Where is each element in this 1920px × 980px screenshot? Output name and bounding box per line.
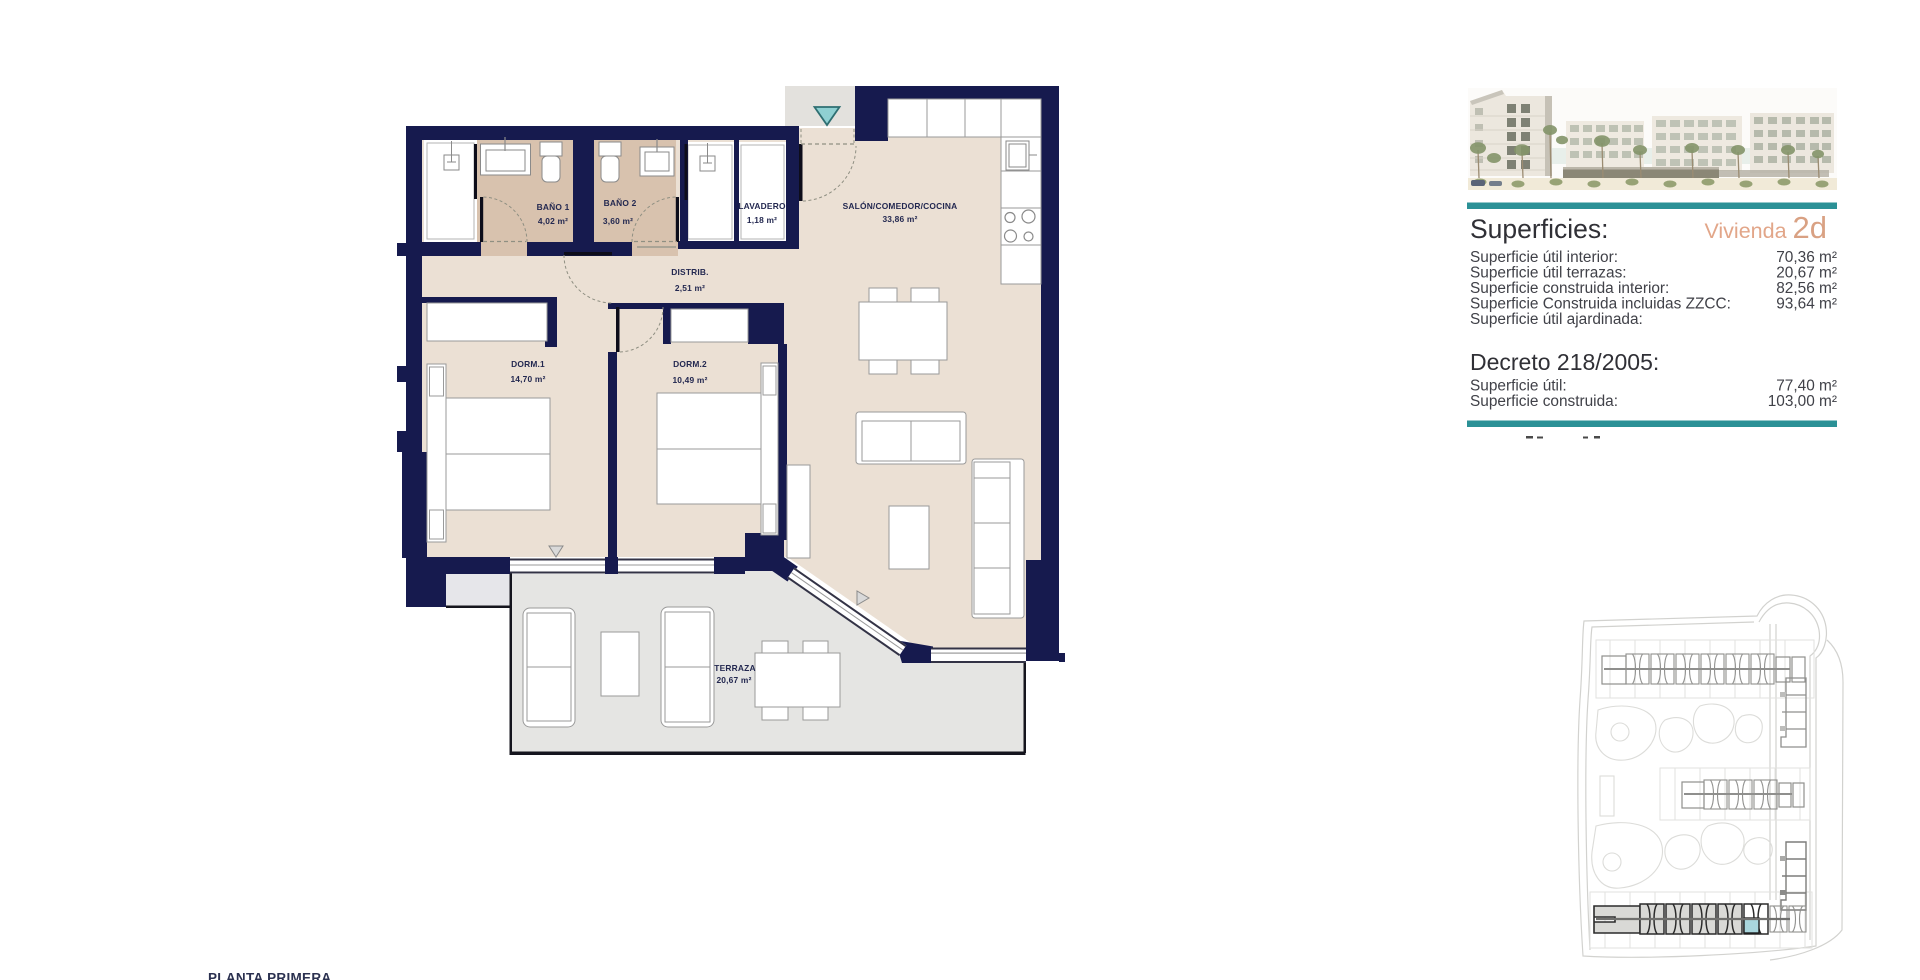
svg-text:DORM.1: DORM.1 [511, 359, 545, 369]
svg-text:Superficie construida interior: Superficie construida interior: [1470, 280, 1669, 297]
svg-text:Superficie construida:: Superficie construida: [1470, 393, 1618, 410]
svg-text:LAVADERO: LAVADERO [738, 201, 786, 211]
svg-text:20,67 m²: 20,67 m² [1776, 265, 1837, 282]
svg-text:20,67 m²: 20,67 m² [716, 675, 751, 685]
svg-text:Decreto 218/2005:: Decreto 218/2005: [1470, 349, 1659, 375]
svg-text:3,60 m²: 3,60 m² [603, 216, 633, 226]
svg-text:DISTRIB.: DISTRIB. [671, 267, 708, 277]
svg-text:70,36 m²: 70,36 m² [1776, 249, 1837, 266]
svg-text:Superficie útil terrazas:: Superficie útil terrazas: [1470, 265, 1627, 282]
svg-text:TERRAZA: TERRAZA [714, 663, 755, 673]
svg-text:Superficies:: Superficies: [1470, 214, 1608, 244]
svg-text:SALÓN/COMEDOR/COCINA: SALÓN/COMEDOR/COCINA [843, 200, 958, 211]
svg-text:Superficie útil ajardinada:: Superficie útil ajardinada: [1470, 311, 1643, 328]
svg-text:77,40 m²: 77,40 m² [1776, 378, 1837, 395]
svg-text:2,51 m²: 2,51 m² [675, 283, 705, 293]
svg-text:93,64 m²: 93,64 m² [1776, 296, 1837, 313]
svg-text:82,56 m²: 82,56 m² [1776, 280, 1837, 297]
svg-text:Superficie útil:: Superficie útil: [1470, 378, 1567, 395]
svg-text:DORM.2: DORM.2 [673, 359, 707, 369]
svg-text:103,00 m²: 103,00 m² [1768, 393, 1837, 410]
svg-text:BAÑO 2: BAÑO 2 [604, 198, 637, 208]
svg-text:Superficie Construida incluida: Superficie Construida incluidas ZZCC: [1470, 296, 1731, 313]
svg-text:14,70 m²: 14,70 m² [510, 374, 545, 384]
svg-text:1,18 m²: 1,18 m² [747, 215, 777, 225]
svg-text:PLANTA PRIMERA: PLANTA PRIMERA [208, 971, 331, 980]
svg-text:BAÑO 1: BAÑO 1 [537, 202, 570, 212]
svg-text:Superficie útil interior:: Superficie útil interior: [1470, 249, 1618, 266]
svg-text:10,49 m²: 10,49 m² [672, 375, 707, 385]
svg-text:33,86 m²: 33,86 m² [882, 214, 917, 224]
svg-text:4,02 m²: 4,02 m² [538, 216, 568, 226]
